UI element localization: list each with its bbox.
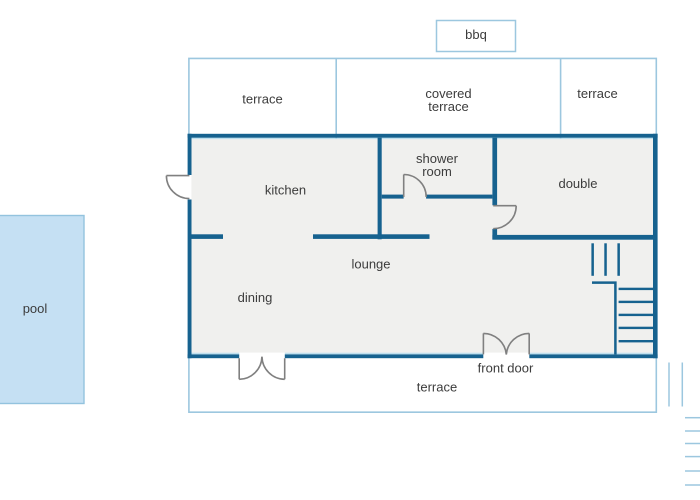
svg-text:double: double (558, 176, 597, 191)
svg-text:dining: dining (238, 290, 273, 305)
svg-text:terrace: terrace (417, 380, 457, 395)
svg-text:kitchen: kitchen (265, 183, 306, 198)
svg-text:terrace: terrace (577, 86, 617, 101)
svg-text:terrace: terrace (428, 99, 468, 114)
svg-text:front door: front door (478, 361, 534, 376)
svg-text:pool: pool (23, 301, 48, 316)
svg-text:lounge: lounge (351, 257, 390, 272)
svg-text:bbq: bbq (465, 27, 487, 42)
svg-text:room: room (422, 164, 452, 179)
svg-text:terrace: terrace (242, 92, 282, 107)
